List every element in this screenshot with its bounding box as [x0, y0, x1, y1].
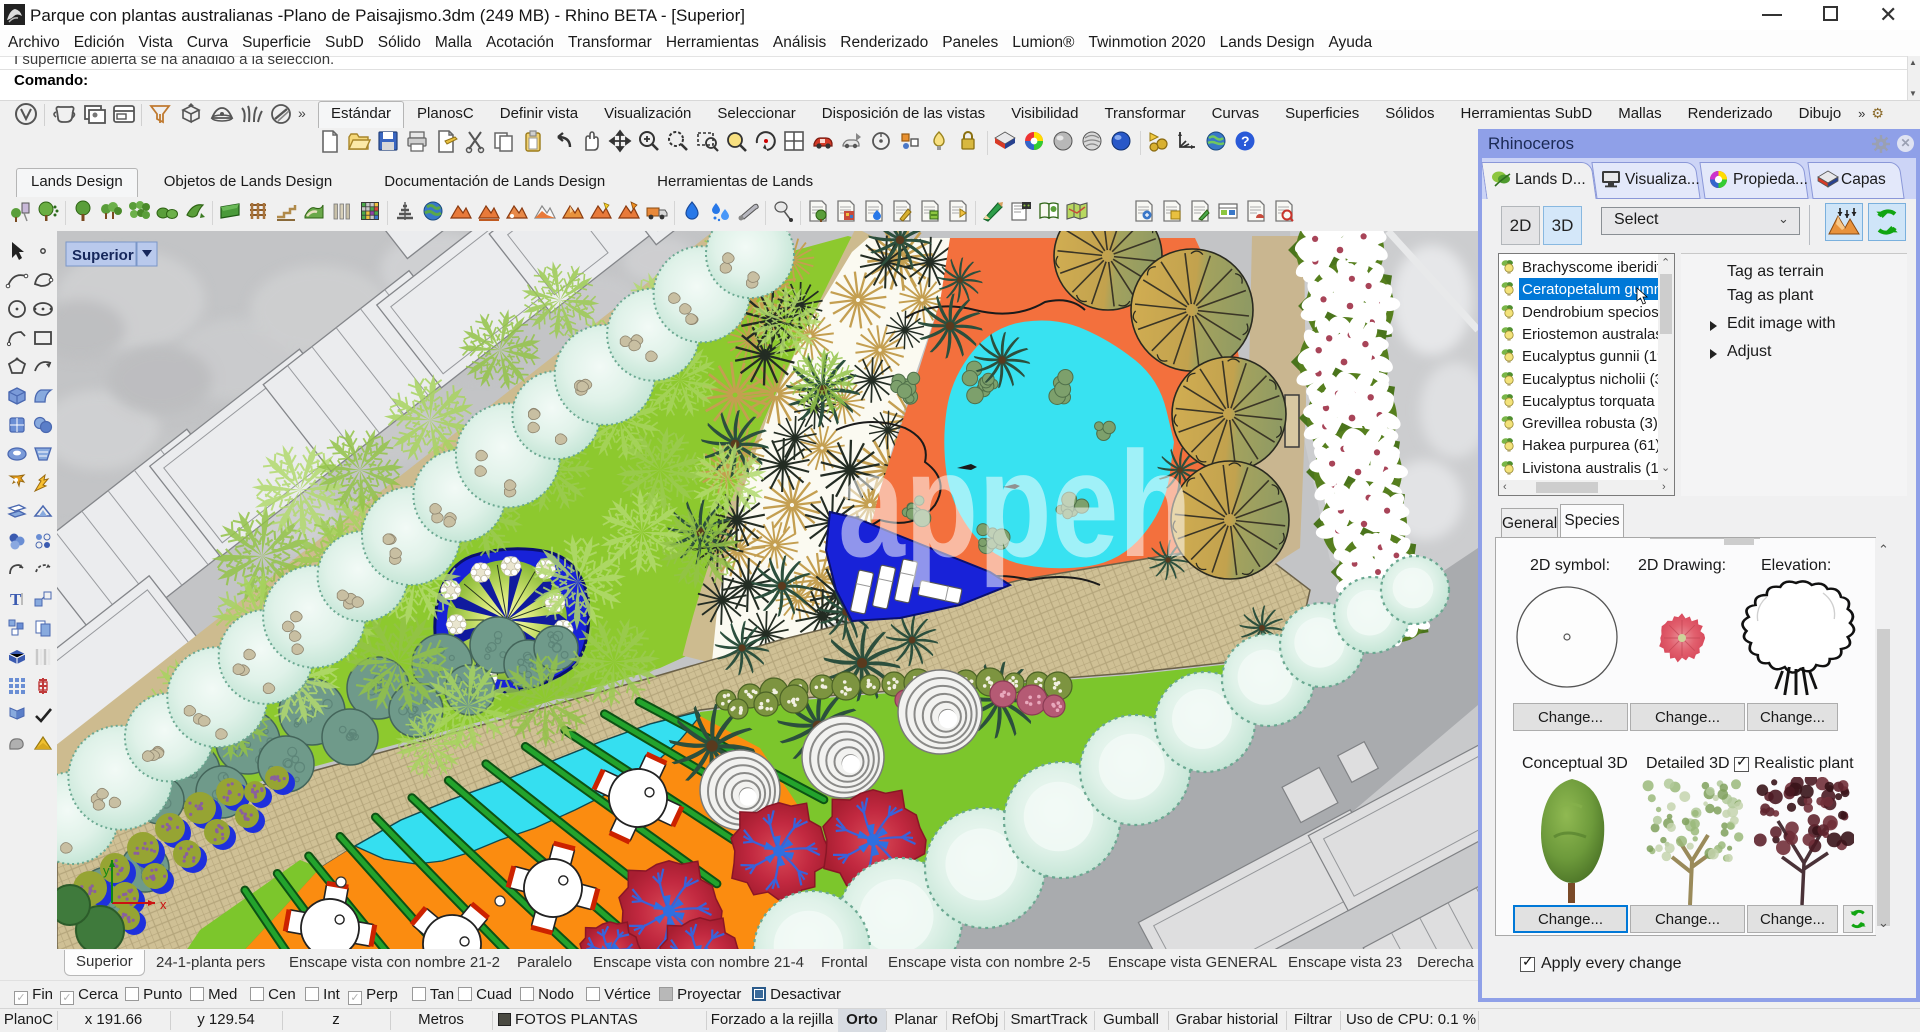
svg-text:appeh: appeh: [838, 420, 1192, 588]
svg-text:Superior: Superior: [72, 247, 134, 264]
svg-text:x: x: [160, 897, 167, 912]
svg-text:y: y: [103, 863, 110, 878]
svg-text:?: ?: [1241, 133, 1250, 149]
svg-text:T: T: [10, 590, 22, 609]
